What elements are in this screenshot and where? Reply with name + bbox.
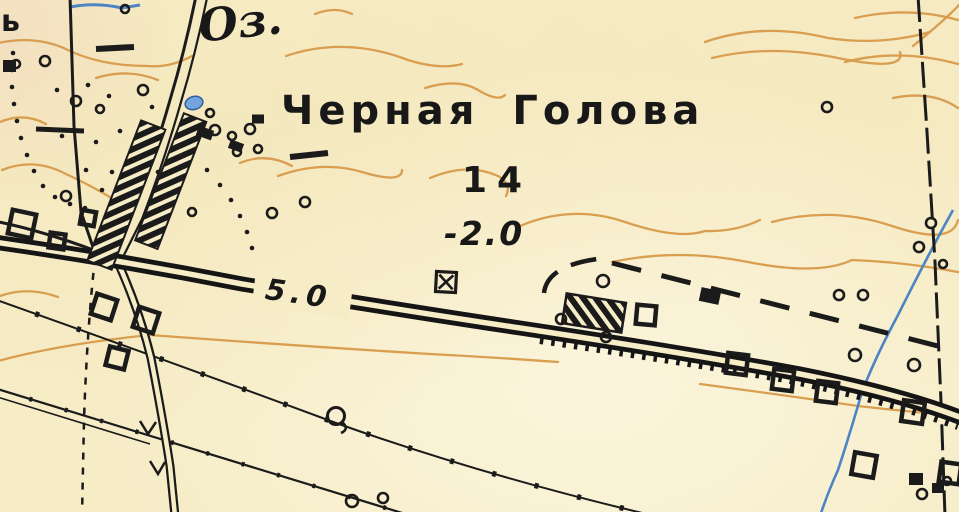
hatched-barn xyxy=(562,293,626,332)
elevation-mark-label: -2.0 xyxy=(444,214,524,253)
map-canvas: Черная Голова 14 -2.0 5.0 Оз. ь xyxy=(0,0,959,512)
spot-height-label: 14 xyxy=(462,160,532,201)
stream xyxy=(70,5,953,512)
embankment-ticks xyxy=(540,340,958,426)
east-vertical-road xyxy=(918,0,945,512)
tree-circles xyxy=(12,5,951,507)
edge-letter-label: ь xyxy=(1,4,20,39)
south-road xyxy=(114,254,175,512)
lake-abbreviation-label: Оз. xyxy=(196,0,285,53)
map-linework xyxy=(0,0,959,512)
boxed-x-symbol xyxy=(435,271,456,292)
settlement-label: Черная Голова xyxy=(281,88,704,134)
windmill-icon xyxy=(328,408,346,434)
field-track-south xyxy=(0,388,412,512)
lake xyxy=(184,94,205,111)
